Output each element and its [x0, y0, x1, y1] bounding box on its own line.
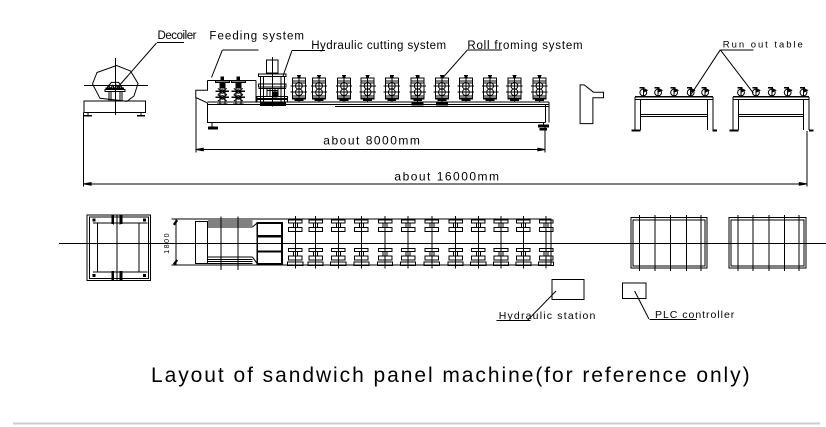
svg-text:1800: 1800: [164, 233, 171, 253]
svg-text:Hydraulic cutting system: Hydraulic cutting system: [311, 40, 446, 52]
svg-text:Run out table: Run out table: [723, 39, 803, 50]
svg-text:Feeding system: Feeding system: [209, 31, 304, 43]
svg-text:Layout of sandwich panel machi: Layout of sandwich panel machine(for ref…: [151, 364, 750, 387]
svg-text:about 8000mm: about 8000mm: [323, 133, 420, 147]
svg-text:Hydraulic station: Hydraulic station: [499, 310, 596, 322]
svg-text:about 16000mm: about 16000mm: [394, 169, 499, 183]
svg-text:Decoiler: Decoiler: [158, 30, 197, 42]
